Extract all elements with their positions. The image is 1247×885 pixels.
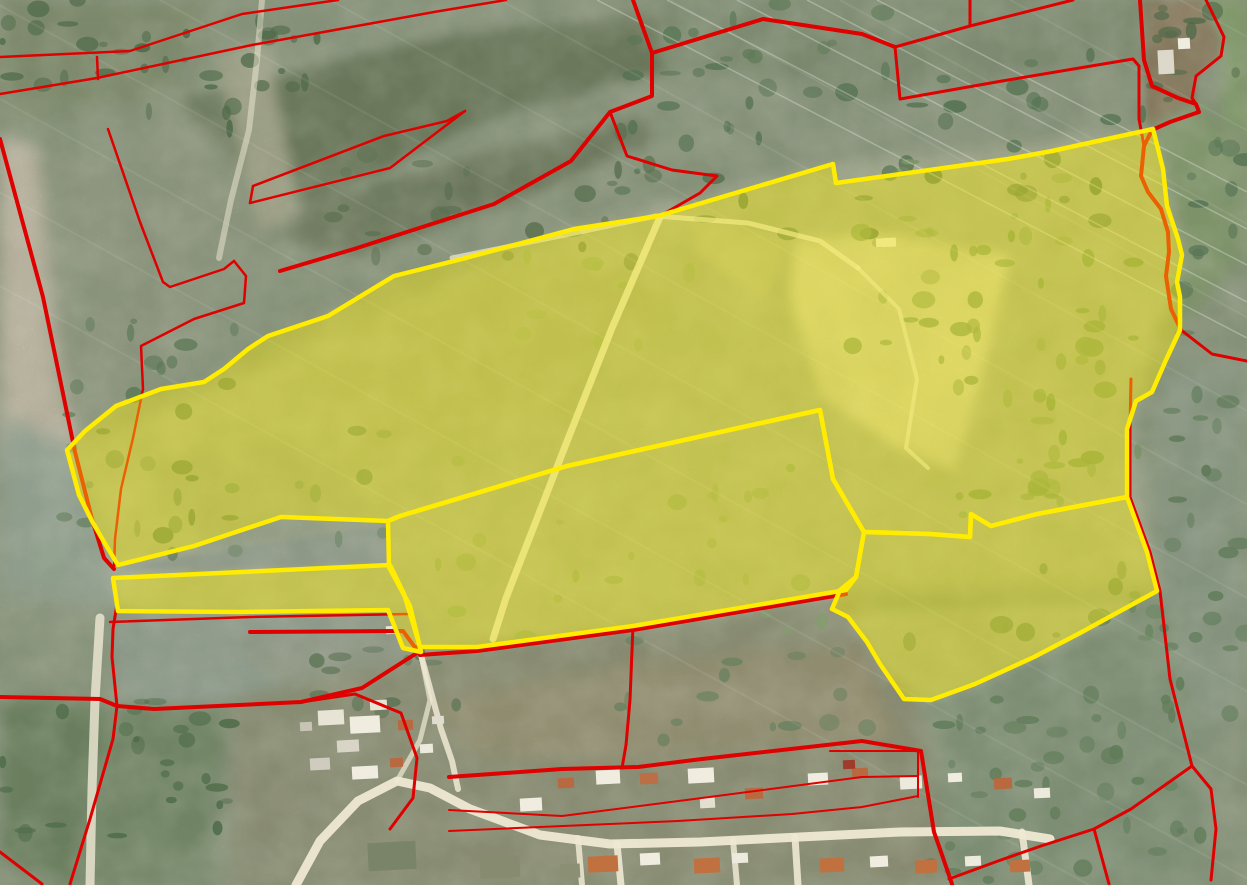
tree-clump <box>575 185 596 202</box>
tree-clump <box>1086 48 1095 62</box>
tree-clump <box>747 50 762 64</box>
building <box>1010 859 1031 872</box>
tree-clump <box>86 317 95 332</box>
tree-clump <box>1 15 16 31</box>
map-viewport[interactable] <box>0 0 1247 885</box>
building <box>820 857 845 872</box>
building <box>560 863 581 878</box>
tree-clump <box>130 318 137 324</box>
building <box>694 857 721 873</box>
tree-clump <box>607 181 618 186</box>
tree-clump <box>671 718 683 726</box>
tree-clump <box>174 339 198 351</box>
tree-clump <box>219 719 240 729</box>
tree-clump <box>622 70 643 81</box>
tree-clump <box>1100 114 1121 125</box>
tree-clump <box>270 26 290 35</box>
tree-clump <box>1221 705 1238 722</box>
tree-clump <box>340 167 352 177</box>
tree-clump <box>1123 817 1131 834</box>
tree-clump <box>1191 386 1202 403</box>
building <box>310 757 331 770</box>
tree-clump <box>301 73 309 91</box>
tree-clump <box>357 146 378 163</box>
tree-clump <box>1154 11 1169 20</box>
tree-clump <box>933 721 956 730</box>
building <box>1178 38 1191 50</box>
building <box>367 841 416 871</box>
tree-clump <box>803 86 822 98</box>
tree-clump <box>1203 612 1222 626</box>
tree-clump <box>444 182 452 200</box>
building <box>1157 50 1174 75</box>
tree-clump <box>133 737 139 743</box>
tree-clump <box>417 244 431 255</box>
tree-clump <box>614 702 626 711</box>
tree-clump <box>1164 538 1181 552</box>
tree-clump <box>1073 859 1092 876</box>
tree-clump <box>615 186 631 195</box>
tree-clump <box>338 204 350 212</box>
building <box>915 859 938 873</box>
tree-clump <box>119 722 134 736</box>
building <box>390 758 403 768</box>
tree-clump <box>1177 827 1188 834</box>
building <box>558 778 575 789</box>
tree-clump <box>309 653 325 668</box>
tree-clump <box>230 323 239 337</box>
tree-clump <box>688 28 699 38</box>
tree-clump <box>625 636 644 645</box>
tree-clump <box>335 531 343 548</box>
parcel-boundary-line <box>97 57 98 79</box>
tree-clump <box>938 113 953 130</box>
tree-clump <box>412 160 433 168</box>
tree-clump <box>1163 97 1173 103</box>
tree-clump <box>770 722 776 731</box>
tree-clump <box>819 714 840 731</box>
tree-clump <box>660 71 681 76</box>
tree-clump <box>628 120 638 135</box>
tree-clump <box>1117 721 1126 739</box>
building <box>688 767 715 783</box>
tree-clump <box>1187 173 1197 181</box>
tree-clump <box>1152 34 1162 43</box>
building <box>1034 788 1051 799</box>
building <box>588 855 619 873</box>
tree-clump <box>179 732 196 747</box>
tree-clump <box>614 161 622 179</box>
tree-clump <box>1212 418 1222 434</box>
tree-clump <box>1132 777 1145 785</box>
building <box>948 773 962 783</box>
tree-clump <box>228 545 243 557</box>
tree-clump <box>679 135 695 152</box>
tree-clump <box>745 96 753 109</box>
tree-clump <box>1158 5 1168 12</box>
tree-clump <box>1183 18 1206 25</box>
building <box>300 722 312 732</box>
building <box>965 856 982 867</box>
tree-clump <box>693 68 705 77</box>
tree-clump <box>0 72 24 80</box>
building <box>596 769 621 784</box>
tree-clump <box>146 103 152 120</box>
tree-clump <box>1168 496 1187 502</box>
tree-clump <box>56 704 69 719</box>
tree-clump <box>1186 22 1197 40</box>
tree-clump <box>1148 847 1167 856</box>
tree-clump <box>204 84 217 89</box>
tree-clump <box>224 98 242 115</box>
building <box>352 765 379 779</box>
tree-clump <box>1214 137 1221 148</box>
tree-clump <box>1046 727 1068 738</box>
tree-clump <box>1205 468 1221 481</box>
tree-clump <box>827 40 837 47</box>
tree-clump <box>1009 808 1026 821</box>
tree-clump <box>362 646 384 653</box>
building <box>318 709 345 725</box>
tree-clump <box>1187 513 1194 529</box>
tree-clump <box>1079 736 1094 753</box>
building <box>732 853 749 864</box>
building <box>479 855 520 879</box>
tree-clump <box>1101 747 1124 764</box>
building <box>700 798 716 809</box>
tree-clump <box>107 833 127 839</box>
tree-clump <box>173 725 189 733</box>
tree-clump <box>1208 591 1224 601</box>
building <box>870 856 889 868</box>
tree-clump <box>1091 714 1101 722</box>
tree-clump <box>285 81 300 92</box>
tree-clump <box>167 356 178 369</box>
tree-clump <box>99 42 108 48</box>
aerial-map-svg <box>0 0 1247 885</box>
building <box>337 739 360 752</box>
tree-clump <box>127 324 134 341</box>
building <box>843 760 855 770</box>
tree-clump <box>1231 67 1240 78</box>
tree-clump <box>627 35 643 44</box>
tree-clump <box>983 876 994 884</box>
tree-clump <box>1024 59 1038 67</box>
tree-clump <box>1193 415 1209 421</box>
tree-clump <box>788 652 807 661</box>
building <box>350 715 381 734</box>
tree-clump <box>948 760 955 769</box>
tree-clump <box>199 70 223 81</box>
tree-clump <box>1169 435 1185 442</box>
tree-clump <box>720 56 733 62</box>
tree-clump <box>201 773 210 784</box>
tree-clump <box>328 652 351 661</box>
tree-clump <box>1189 632 1203 643</box>
tree-clump <box>1050 807 1060 820</box>
tree-clump <box>971 791 988 798</box>
road <box>578 838 582 885</box>
tree-clump <box>833 688 847 702</box>
tree-clump <box>15 827 36 833</box>
tree-clump <box>173 781 183 790</box>
tree-clump <box>142 31 151 42</box>
building <box>432 716 444 725</box>
tree-clump <box>696 691 719 701</box>
tree-clump <box>371 247 380 266</box>
tree-clump <box>816 613 828 630</box>
tree-clump <box>161 770 170 777</box>
tree-clump <box>1176 677 1185 691</box>
tree-clump <box>1218 547 1238 559</box>
tree-clump <box>451 698 461 711</box>
building <box>994 778 1013 790</box>
tree-clump <box>56 512 72 521</box>
tree-clump <box>1016 716 1039 724</box>
road <box>795 837 798 885</box>
tree-clump <box>1083 686 1099 704</box>
tree-clump <box>945 841 956 851</box>
tree-clump <box>365 231 381 236</box>
tree-clump <box>759 78 777 96</box>
tree-clump <box>1163 408 1181 414</box>
tree-clump <box>1222 645 1238 651</box>
tree-clump <box>721 658 742 666</box>
tree-clump <box>321 667 340 675</box>
tree-clump <box>906 102 928 107</box>
tree-clump <box>206 783 229 791</box>
tree-clump <box>1228 224 1237 239</box>
tree-clump <box>57 21 78 27</box>
tree-clump <box>943 100 966 113</box>
tree-clump <box>937 75 951 84</box>
tree-clump <box>1014 780 1032 788</box>
tree-clump <box>45 822 67 827</box>
tree-clump <box>27 1 49 18</box>
tree-clump <box>166 797 177 804</box>
tree-clump <box>1217 395 1240 408</box>
tree-clump <box>144 698 167 705</box>
tree-clump <box>189 711 211 726</box>
tree-clump <box>658 734 670 747</box>
tree-clump <box>1194 827 1207 844</box>
tree-clump <box>1162 700 1174 714</box>
tree-clump <box>1043 751 1064 764</box>
tree-clump <box>160 759 174 766</box>
tree-clump <box>221 798 233 804</box>
tree-clump <box>1193 249 1204 260</box>
building <box>640 852 661 865</box>
building <box>520 797 543 811</box>
tree-clump <box>719 668 730 682</box>
building <box>640 773 659 785</box>
building <box>420 744 433 754</box>
tree-clump <box>70 379 84 394</box>
tree-clump <box>226 120 233 138</box>
tree-clump <box>990 696 1004 704</box>
tree-clump <box>858 719 876 736</box>
tree-clump <box>324 212 343 223</box>
tree-clump <box>657 101 680 111</box>
tree-clump <box>213 821 223 836</box>
